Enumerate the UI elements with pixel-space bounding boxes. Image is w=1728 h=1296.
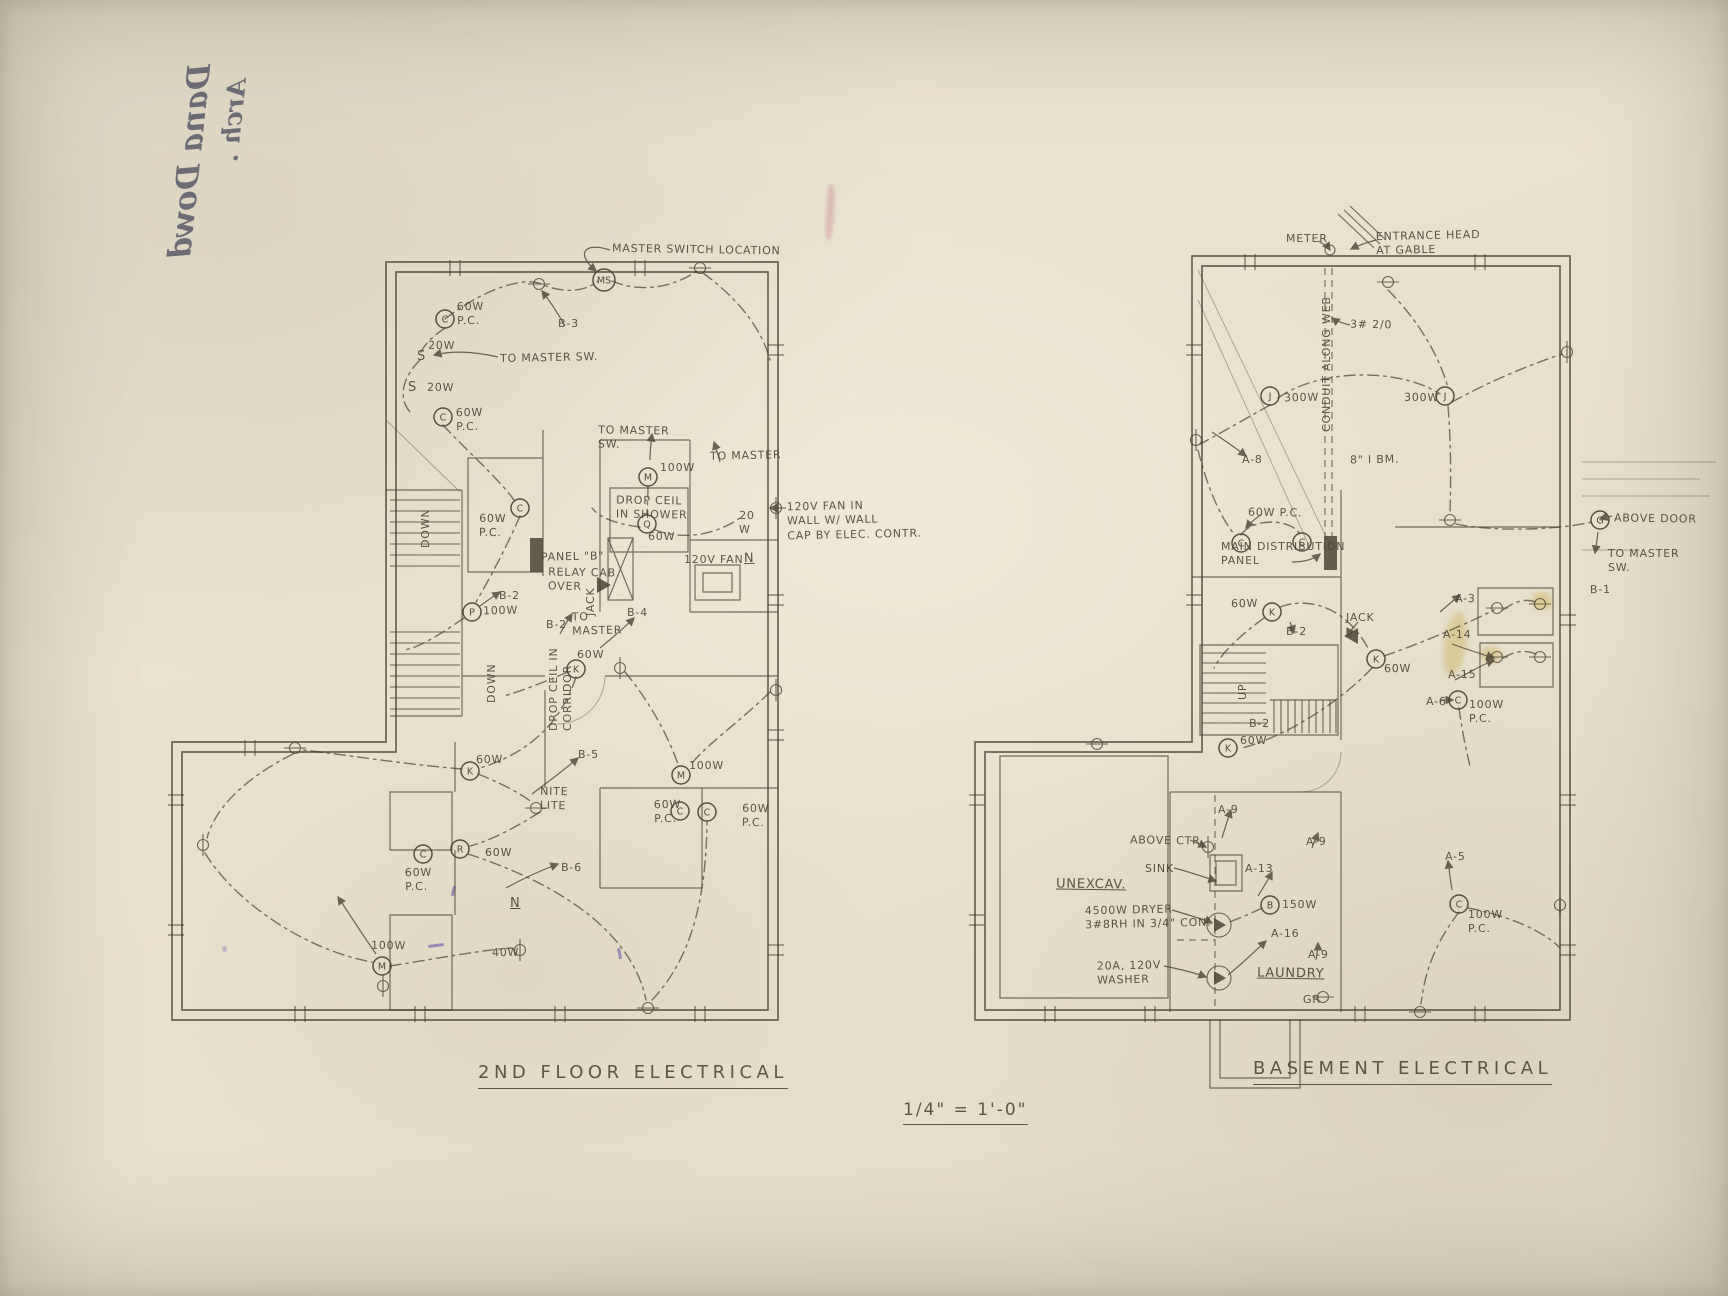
plan-label: UP bbox=[1236, 684, 1250, 700]
plan-label: CONDUIT ALONG WEB bbox=[1320, 296, 1334, 432]
plan-label: B-2 bbox=[1249, 717, 1270, 732]
plan-label: 100W P.C. bbox=[1468, 908, 1503, 937]
plan-label: A-15 bbox=[1448, 668, 1477, 683]
plan-label: 100W bbox=[689, 759, 724, 773]
plan-label: A-8 bbox=[1242, 453, 1263, 467]
plan-label: 60W bbox=[1240, 734, 1267, 748]
plan-label: ABOVE CTR. bbox=[1130, 833, 1205, 848]
plan-label: 60W P.C. bbox=[1248, 506, 1303, 521]
plan-label: SINK bbox=[1145, 862, 1174, 876]
plan-label: 20 W bbox=[739, 509, 755, 538]
plan-label: 60W bbox=[1384, 662, 1412, 677]
plan-label: 150W bbox=[1282, 898, 1317, 913]
plan-label: 120V FAN IN WALL W/ WALL CAP BY ELEC. CO… bbox=[787, 498, 922, 544]
plan-label: TO MASTER SW. bbox=[1608, 547, 1679, 576]
plan-label: B-2 bbox=[546, 618, 567, 632]
plan-label: A-14 bbox=[1443, 628, 1471, 642]
plan-basement-title: BASEMENT ELECTRICAL bbox=[1253, 1058, 1552, 1085]
plan-label: A-13 bbox=[1245, 862, 1273, 876]
plan-label: 20A, 120V WASHER bbox=[1097, 958, 1162, 988]
plan-label: 100W bbox=[483, 604, 518, 619]
plan-label: 100W bbox=[371, 939, 406, 954]
plan-label: S bbox=[417, 349, 426, 366]
plan-label: 60W P.C. bbox=[479, 512, 507, 541]
plan-label: 20W bbox=[427, 381, 455, 396]
plan-label: A-6 bbox=[1426, 695, 1447, 710]
plan-label: TO MASTER bbox=[710, 448, 782, 464]
plan-label: 60W bbox=[1231, 597, 1259, 612]
plan-label: 100W bbox=[660, 461, 695, 475]
plan-label: A-3 bbox=[1455, 592, 1476, 607]
plan-label: MASTER SWITCH LOCATION bbox=[612, 242, 781, 259]
scale-note: 1/4" = 1'-0" bbox=[903, 1100, 1028, 1125]
plan-label: DOWN bbox=[485, 664, 499, 703]
plan-label: TO MASTER SW. bbox=[500, 350, 598, 366]
drawing-sheet: Dana Dowd Arch . bbox=[0, 0, 1728, 1296]
plan-label: 60W bbox=[476, 753, 504, 768]
plan-label: 60W P.C. bbox=[405, 866, 433, 895]
plan-label: UNEXCAV. bbox=[1056, 876, 1127, 894]
plan-label: 300W bbox=[1284, 391, 1319, 406]
plan-label: ABOVE DOOR bbox=[1614, 511, 1697, 527]
plan-label: B-6 bbox=[561, 861, 582, 876]
plan-label: B-5 bbox=[578, 748, 599, 762]
plan-label: DROP CEIL IN CORRIDOR bbox=[547, 648, 576, 731]
plan-label: GR bbox=[1303, 993, 1321, 1008]
plan-label: A-9 bbox=[1218, 803, 1239, 818]
annotation-layer: MASTER SWITCH LOCATIONB-360W P.C.20WSTO … bbox=[0, 0, 1728, 1296]
plan-label: PANEL "B" bbox=[541, 549, 604, 565]
plan-label: A-9 bbox=[1306, 835, 1327, 850]
plan-label: 60W bbox=[485, 846, 512, 860]
plan-label: S bbox=[408, 380, 417, 397]
plan-label: B-2 bbox=[1286, 625, 1307, 640]
plan-label: TO MASTER bbox=[572, 609, 623, 639]
plan-label: B-1 bbox=[1590, 583, 1611, 598]
plan-label: 8" I BM. bbox=[1350, 452, 1400, 467]
plan-label: 60W bbox=[577, 648, 604, 662]
plan-label: B-2 bbox=[499, 589, 520, 603]
plan-label: METER bbox=[1286, 232, 1328, 246]
plan-label: 300W bbox=[1404, 391, 1439, 406]
plan-label: 60W P.C. bbox=[456, 406, 484, 435]
plan-label: TO MASTER SW. bbox=[598, 423, 670, 453]
plan-label: B-3 bbox=[558, 317, 579, 331]
plan-label: JACK bbox=[1346, 611, 1374, 625]
plan-label: 60W bbox=[648, 530, 675, 544]
plan-label: ENTRANCE HEAD AT GABLE bbox=[1376, 228, 1481, 259]
plan-label: 60W P.C. bbox=[742, 802, 770, 831]
plan-label: N bbox=[510, 896, 521, 913]
plan-label: DOWN bbox=[419, 509, 433, 548]
plan-label: 60W P.C. bbox=[654, 798, 682, 827]
plan-label: 60W P.C. bbox=[457, 300, 485, 329]
plan-label: 120V FAN bbox=[684, 553, 744, 567]
plan-label: LAUNDRY bbox=[1257, 965, 1325, 983]
plan-label: 100W P.C. bbox=[1469, 698, 1504, 727]
plan-label: A-5 bbox=[1445, 850, 1466, 865]
plan-label: 40W bbox=[492, 946, 520, 961]
plan-label: A-9 bbox=[1308, 948, 1329, 962]
plan-label: A-16 bbox=[1271, 927, 1299, 941]
plan-label: N bbox=[744, 551, 755, 568]
plan-label: 3# 2/0 bbox=[1350, 318, 1392, 333]
plan-label: B-4 bbox=[627, 606, 648, 621]
plan-label: NITE LITE bbox=[540, 785, 569, 814]
plan-label: MAIN DISTRIBUTION PANEL bbox=[1221, 540, 1345, 569]
plan-label: 4500W DRYER 3#8RH IN 3/4" CON. bbox=[1085, 902, 1212, 933]
plan-label: DROP CEIL IN SHOWER bbox=[616, 493, 688, 523]
plan-2nd-floor-title: 2ND FLOOR ELECTRICAL bbox=[478, 1062, 788, 1089]
plan-label: 20W bbox=[428, 339, 456, 354]
